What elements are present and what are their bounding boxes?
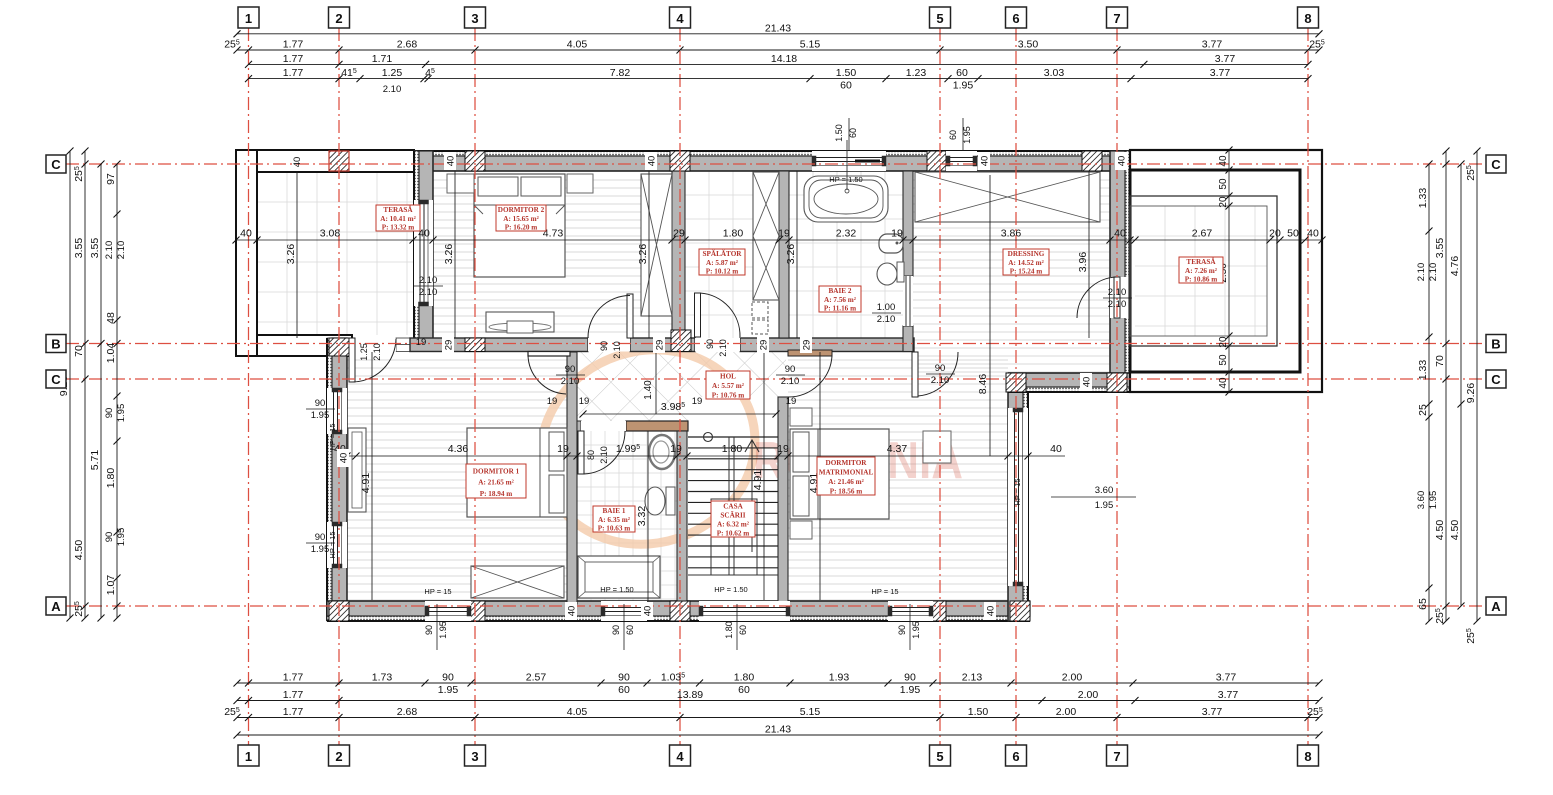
svg-text:P: 10.62 m: P: 10.62 m <box>717 529 750 537</box>
svg-text:2.10: 2.10 <box>561 376 580 387</box>
svg-text:3.26: 3.26 <box>443 244 455 265</box>
svg-text:HP = 15: HP = 15 <box>1013 478 1022 505</box>
svg-text:3: 3 <box>471 11 478 26</box>
svg-text:25: 25 <box>1417 404 1429 416</box>
svg-text:B: B <box>51 337 60 352</box>
svg-text:4.37: 4.37 <box>887 443 908 455</box>
svg-text:TERASĂ: TERASĂ <box>383 204 413 214</box>
svg-text:3.77: 3.77 <box>1210 67 1231 79</box>
svg-text:P: 15.24 m: P: 15.24 m <box>1010 267 1043 275</box>
svg-text:2.10: 2.10 <box>372 343 382 361</box>
svg-text:29: 29 <box>759 340 770 351</box>
svg-text:2.00: 2.00 <box>1062 672 1083 684</box>
svg-text:DORMITOR: DORMITOR <box>826 459 868 467</box>
svg-text:4.50: 4.50 <box>73 540 85 561</box>
svg-text:MATRIMONIAL: MATRIMONIAL <box>819 468 874 476</box>
svg-text:90: 90 <box>565 364 576 375</box>
svg-text:60: 60 <box>738 684 750 696</box>
svg-text:1.73: 1.73 <box>372 672 393 684</box>
svg-text:2.13: 2.13 <box>962 672 983 684</box>
svg-text:1.77: 1.77 <box>283 706 304 718</box>
svg-text:3.26: 3.26 <box>637 244 649 265</box>
svg-text:2.00: 2.00 <box>1056 706 1077 718</box>
svg-text:B: B <box>1491 337 1500 352</box>
svg-text:90: 90 <box>705 339 715 349</box>
svg-text:CASA: CASA <box>723 502 743 510</box>
svg-text:A: 6.35 m²: A: 6.35 m² <box>598 516 630 524</box>
svg-text:HP = 15: HP = 15 <box>328 531 337 558</box>
svg-text:19: 19 <box>891 228 903 240</box>
svg-text:60: 60 <box>840 80 852 92</box>
svg-text:3.32: 3.32 <box>636 506 648 527</box>
svg-text:29: 29 <box>655 340 666 351</box>
svg-text:A: 10.41 m²: A: 10.41 m² <box>380 215 416 223</box>
svg-text:5.15: 5.15 <box>800 39 821 51</box>
svg-text:70: 70 <box>73 345 85 357</box>
svg-text:1.77: 1.77 <box>283 689 304 701</box>
svg-text:90: 90 <box>611 625 621 635</box>
svg-text:1.95: 1.95 <box>900 684 921 696</box>
svg-text:1.95: 1.95 <box>438 684 459 696</box>
svg-text:97: 97 <box>105 173 117 185</box>
svg-text:2.10: 2.10 <box>104 241 115 260</box>
svg-text:2.10: 2.10 <box>1416 263 1427 282</box>
svg-text:A: 5.57 m²: A: 5.57 m² <box>712 382 744 390</box>
svg-text:90: 90 <box>785 364 796 375</box>
svg-text:1.95: 1.95 <box>911 621 921 639</box>
svg-text:P: 13.32 m: P: 13.32 m <box>382 223 415 231</box>
svg-text:1.33: 1.33 <box>1417 360 1429 381</box>
svg-text:HP = 1.50: HP = 1.50 <box>714 585 747 594</box>
svg-text:P: 16.20 m: P: 16.20 m <box>505 223 538 231</box>
svg-text:SPĂLĂTOR: SPĂLĂTOR <box>702 248 742 258</box>
svg-text:6: 6 <box>1012 11 1019 26</box>
svg-text:2.10: 2.10 <box>419 287 438 298</box>
svg-text:3.08: 3.08 <box>320 228 341 240</box>
svg-text:40: 40 <box>292 157 303 168</box>
svg-text:P: 10.12 m: P: 10.12 m <box>706 267 739 275</box>
svg-text:C: C <box>1491 157 1501 172</box>
svg-text:19: 19 <box>547 396 558 407</box>
svg-text:7.82: 7.82 <box>610 67 631 79</box>
svg-text:3.77: 3.77 <box>1216 672 1237 684</box>
svg-text:13.89: 13.89 <box>677 689 703 701</box>
svg-text:1.50: 1.50 <box>834 124 844 142</box>
svg-text:90: 90 <box>104 532 115 543</box>
svg-text:1: 1 <box>245 11 252 26</box>
svg-text:2.10: 2.10 <box>1428 263 1439 282</box>
svg-text:1.77: 1.77 <box>283 67 304 79</box>
svg-text:P: 18.94 m: P: 18.94 m <box>480 490 513 498</box>
svg-text:2: 2 <box>335 749 342 764</box>
svg-text:19: 19 <box>777 443 789 455</box>
svg-text:90: 90 <box>104 408 115 419</box>
svg-text:40: 40 <box>567 606 578 617</box>
svg-text:1: 1 <box>245 749 252 764</box>
svg-text:A: 5.87 m²: A: 5.87 m² <box>706 259 738 267</box>
svg-text:1.07: 1.07 <box>105 575 117 596</box>
svg-text:1.40: 1.40 <box>643 380 654 400</box>
svg-text:4.05: 4.05 <box>567 39 588 51</box>
svg-text:1.04: 1.04 <box>105 343 117 364</box>
svg-text:P: 10.76 m: P: 10.76 m <box>712 391 745 399</box>
svg-text:1.93: 1.93 <box>829 672 850 684</box>
svg-text:SCĂRII: SCĂRII <box>720 509 745 519</box>
svg-text:2: 2 <box>335 11 342 26</box>
svg-text:90: 90 <box>935 363 946 374</box>
svg-text:4: 4 <box>676 749 684 764</box>
svg-text:1.80: 1.80 <box>734 672 755 684</box>
svg-text:P: 18.56 m: P: 18.56 m <box>830 487 863 495</box>
svg-text:3: 3 <box>471 749 478 764</box>
svg-text:C: C <box>1491 372 1501 387</box>
svg-text:2.10: 2.10 <box>116 241 127 260</box>
svg-text:20: 20 <box>1218 196 1229 208</box>
svg-text:A: 14.52 m²: A: 14.52 m² <box>1008 259 1044 267</box>
svg-text:8: 8 <box>1304 749 1311 764</box>
svg-text:1.80: 1.80 <box>723 228 744 240</box>
svg-text:40: 40 <box>643 606 654 617</box>
svg-text:90: 90 <box>618 672 630 684</box>
svg-text:HP = 15: HP = 15 <box>871 587 898 596</box>
svg-text:2.32: 2.32 <box>836 228 857 240</box>
svg-text:1.50: 1.50 <box>836 67 857 79</box>
svg-text:9.26: 9.26 <box>1465 383 1477 404</box>
svg-text:90: 90 <box>904 672 916 684</box>
svg-text:A: 7.26 m²: A: 7.26 m² <box>1185 267 1217 275</box>
svg-text:1.95: 1.95 <box>1095 500 1114 511</box>
svg-text:40: 40 <box>1050 443 1062 455</box>
svg-text:HP = 1.50: HP = 1.50 <box>829 175 862 184</box>
svg-text:2.10: 2.10 <box>877 314 896 325</box>
svg-text:40: 40 <box>1114 228 1126 240</box>
svg-text:14.18: 14.18 <box>771 53 797 65</box>
svg-text:19: 19 <box>416 337 427 348</box>
svg-text:1.77: 1.77 <box>283 39 304 51</box>
svg-text:3.96: 3.96 <box>1077 252 1089 273</box>
svg-text:3.77: 3.77 <box>1202 39 1223 51</box>
svg-text:3.26: 3.26 <box>285 244 297 265</box>
svg-text:2.67: 2.67 <box>1192 228 1213 240</box>
svg-text:3.50: 3.50 <box>1018 39 1039 51</box>
svg-text:19: 19 <box>692 396 703 407</box>
svg-text:29: 29 <box>444 340 455 351</box>
svg-text:2.57: 2.57 <box>526 672 547 684</box>
svg-text:48: 48 <box>105 312 117 324</box>
svg-text:20: 20 <box>1269 228 1281 240</box>
svg-text:7: 7 <box>1113 11 1120 26</box>
svg-text:40: 40 <box>980 156 991 167</box>
svg-text:8.46: 8.46 <box>977 374 989 395</box>
svg-text:3.55: 3.55 <box>73 238 85 259</box>
svg-text:29: 29 <box>802 340 813 351</box>
svg-text:4.91: 4.91 <box>752 470 764 491</box>
svg-text:60: 60 <box>738 625 748 635</box>
svg-text:BAIE 2: BAIE 2 <box>829 287 852 295</box>
svg-text:A: A <box>51 599 61 614</box>
svg-text:80: 80 <box>586 450 596 460</box>
svg-text:HP = 15: HP = 15 <box>424 587 451 596</box>
svg-text:90: 90 <box>897 625 907 635</box>
svg-text:70: 70 <box>1434 355 1446 367</box>
svg-text:40: 40 <box>240 228 252 240</box>
svg-text:40: 40 <box>339 453 350 464</box>
svg-text:1.77: 1.77 <box>283 53 304 65</box>
svg-text:DORMITOR 2: DORMITOR 2 <box>498 206 545 214</box>
svg-text:40: 40 <box>1117 156 1128 167</box>
svg-text:P: 10.63 m: P: 10.63 m <box>598 524 631 532</box>
svg-text:6: 6 <box>1012 749 1019 764</box>
svg-text:2.10: 2.10 <box>1108 299 1127 310</box>
svg-text:3.77: 3.77 <box>1202 706 1223 718</box>
svg-text:60: 60 <box>848 128 858 138</box>
svg-text:1.95: 1.95 <box>116 528 127 547</box>
svg-text:2.10: 2.10 <box>383 84 402 95</box>
svg-text:20: 20 <box>1218 336 1229 348</box>
svg-text:1.95: 1.95 <box>116 404 127 423</box>
svg-text:A: 15.65 m²: A: 15.65 m² <box>503 215 539 223</box>
svg-text:2.68: 2.68 <box>397 39 418 51</box>
svg-text:4.76: 4.76 <box>1449 256 1461 277</box>
svg-text:4.36: 4.36 <box>448 443 469 455</box>
svg-text:19: 19 <box>670 443 682 455</box>
svg-text:DRESSING: DRESSING <box>1008 250 1045 258</box>
svg-text:5.15: 5.15 <box>800 706 821 718</box>
svg-text:50: 50 <box>1287 228 1299 240</box>
svg-text:3.60: 3.60 <box>1095 485 1114 496</box>
svg-text:40: 40 <box>446 156 457 167</box>
svg-text:1.33: 1.33 <box>1417 188 1429 209</box>
svg-text:2.10: 2.10 <box>931 375 950 386</box>
svg-text:3.55: 3.55 <box>1434 238 1446 259</box>
svg-text:1.95: 1.95 <box>438 621 448 639</box>
svg-text:2.00: 2.00 <box>1078 689 1099 701</box>
svg-text:90: 90 <box>599 341 609 351</box>
svg-text:40: 40 <box>1307 228 1319 240</box>
svg-text:2.10: 2.10 <box>781 376 800 387</box>
svg-text:DORMITOR 1: DORMITOR 1 <box>473 467 520 475</box>
svg-text:8: 8 <box>1304 11 1311 26</box>
svg-text:2.68: 2.68 <box>397 706 418 718</box>
svg-text:65: 65 <box>1417 598 1429 610</box>
svg-text:2.10: 2.10 <box>1108 287 1127 298</box>
svg-text:A: 21.65 m²: A: 21.65 m² <box>478 479 514 487</box>
svg-text:BAIE 1: BAIE 1 <box>603 507 626 515</box>
svg-text:1.95: 1.95 <box>962 126 972 144</box>
svg-text:P: 11.16 m: P: 11.16 m <box>824 304 856 312</box>
svg-text:21.43: 21.43 <box>765 724 791 736</box>
svg-text:60: 60 <box>956 67 968 79</box>
svg-text:2.10: 2.10 <box>419 275 438 286</box>
svg-text:5: 5 <box>936 749 943 764</box>
svg-text:1.00: 1.00 <box>877 302 896 313</box>
svg-text:P: 10.86 m: P: 10.86 m <box>1185 275 1218 283</box>
svg-text:A: 6.32 m²: A: 6.32 m² <box>717 520 749 528</box>
svg-text:50: 50 <box>1218 354 1229 366</box>
svg-text:1.95: 1.95 <box>1428 491 1439 510</box>
svg-text:1.25: 1.25 <box>382 67 403 79</box>
svg-text:3.77: 3.77 <box>1215 53 1236 65</box>
svg-text:40: 40 <box>647 156 658 167</box>
svg-text:1.23: 1.23 <box>906 67 927 79</box>
svg-text:21.43: 21.43 <box>765 22 791 34</box>
svg-text:3.55: 3.55 <box>89 238 101 259</box>
svg-text:50: 50 <box>1218 178 1229 190</box>
svg-text:90: 90 <box>315 398 326 409</box>
svg-text:3.77: 3.77 <box>1218 689 1239 701</box>
svg-text:3.26: 3.26 <box>785 244 797 265</box>
svg-text:1.95: 1.95 <box>311 544 330 555</box>
svg-text:C: C <box>51 157 61 172</box>
svg-text:1.50: 1.50 <box>968 706 989 718</box>
svg-text:A: A <box>1491 599 1501 614</box>
svg-text:29: 29 <box>673 228 685 240</box>
svg-text:60: 60 <box>948 130 958 140</box>
svg-text:5.71: 5.71 <box>89 450 101 471</box>
svg-text:60: 60 <box>625 625 635 635</box>
svg-text:3.86: 3.86 <box>1001 228 1022 240</box>
svg-text:1.80: 1.80 <box>724 621 734 639</box>
svg-text:HOL: HOL <box>720 373 736 381</box>
svg-text:19: 19 <box>557 443 569 455</box>
svg-text:1.71: 1.71 <box>372 53 393 65</box>
svg-text:90: 90 <box>424 625 434 635</box>
svg-text:19: 19 <box>786 396 797 407</box>
svg-text:90: 90 <box>442 672 454 684</box>
svg-text:7: 7 <box>1113 749 1120 764</box>
svg-text:TERASĂ: TERASĂ <box>1186 256 1216 266</box>
svg-text:40: 40 <box>986 606 997 617</box>
svg-text:2.10: 2.10 <box>599 446 609 464</box>
svg-text:1.95: 1.95 <box>953 80 974 92</box>
svg-text:1.95: 1.95 <box>311 410 330 421</box>
svg-text:3.60: 3.60 <box>1416 491 1427 510</box>
svg-text:40: 40 <box>1218 377 1229 389</box>
svg-text:4.50: 4.50 <box>1434 520 1446 541</box>
svg-text:4.05: 4.05 <box>567 706 588 718</box>
svg-text:1.80: 1.80 <box>105 468 117 489</box>
svg-text:5: 5 <box>936 11 943 26</box>
svg-text:4: 4 <box>676 11 684 26</box>
svg-text:4.50: 4.50 <box>1449 520 1461 541</box>
svg-text:2.10: 2.10 <box>612 341 622 359</box>
svg-text:40: 40 <box>1082 377 1093 388</box>
svg-text:1.77: 1.77 <box>283 672 304 684</box>
svg-text:A: 7.56 m²: A: 7.56 m² <box>824 296 856 304</box>
svg-text:HP = 15: HP = 15 <box>328 423 337 450</box>
svg-text:19: 19 <box>778 228 790 240</box>
svg-text:40: 40 <box>1218 155 1229 167</box>
svg-text:2.10: 2.10 <box>718 339 728 357</box>
svg-text:60: 60 <box>618 684 630 696</box>
svg-text:1.80: 1.80 <box>722 443 743 455</box>
svg-text:1.25: 1.25 <box>359 343 369 361</box>
svg-text:HP = 1.50: HP = 1.50 <box>600 585 633 594</box>
svg-text:3.03: 3.03 <box>1044 67 1065 79</box>
svg-text:C: C <box>51 372 61 387</box>
svg-text:A: 21.46 m²: A: 21.46 m² <box>828 478 864 486</box>
svg-text:4.91: 4.91 <box>360 473 372 494</box>
svg-text:19: 19 <box>579 396 590 407</box>
svg-text:90: 90 <box>315 532 326 543</box>
